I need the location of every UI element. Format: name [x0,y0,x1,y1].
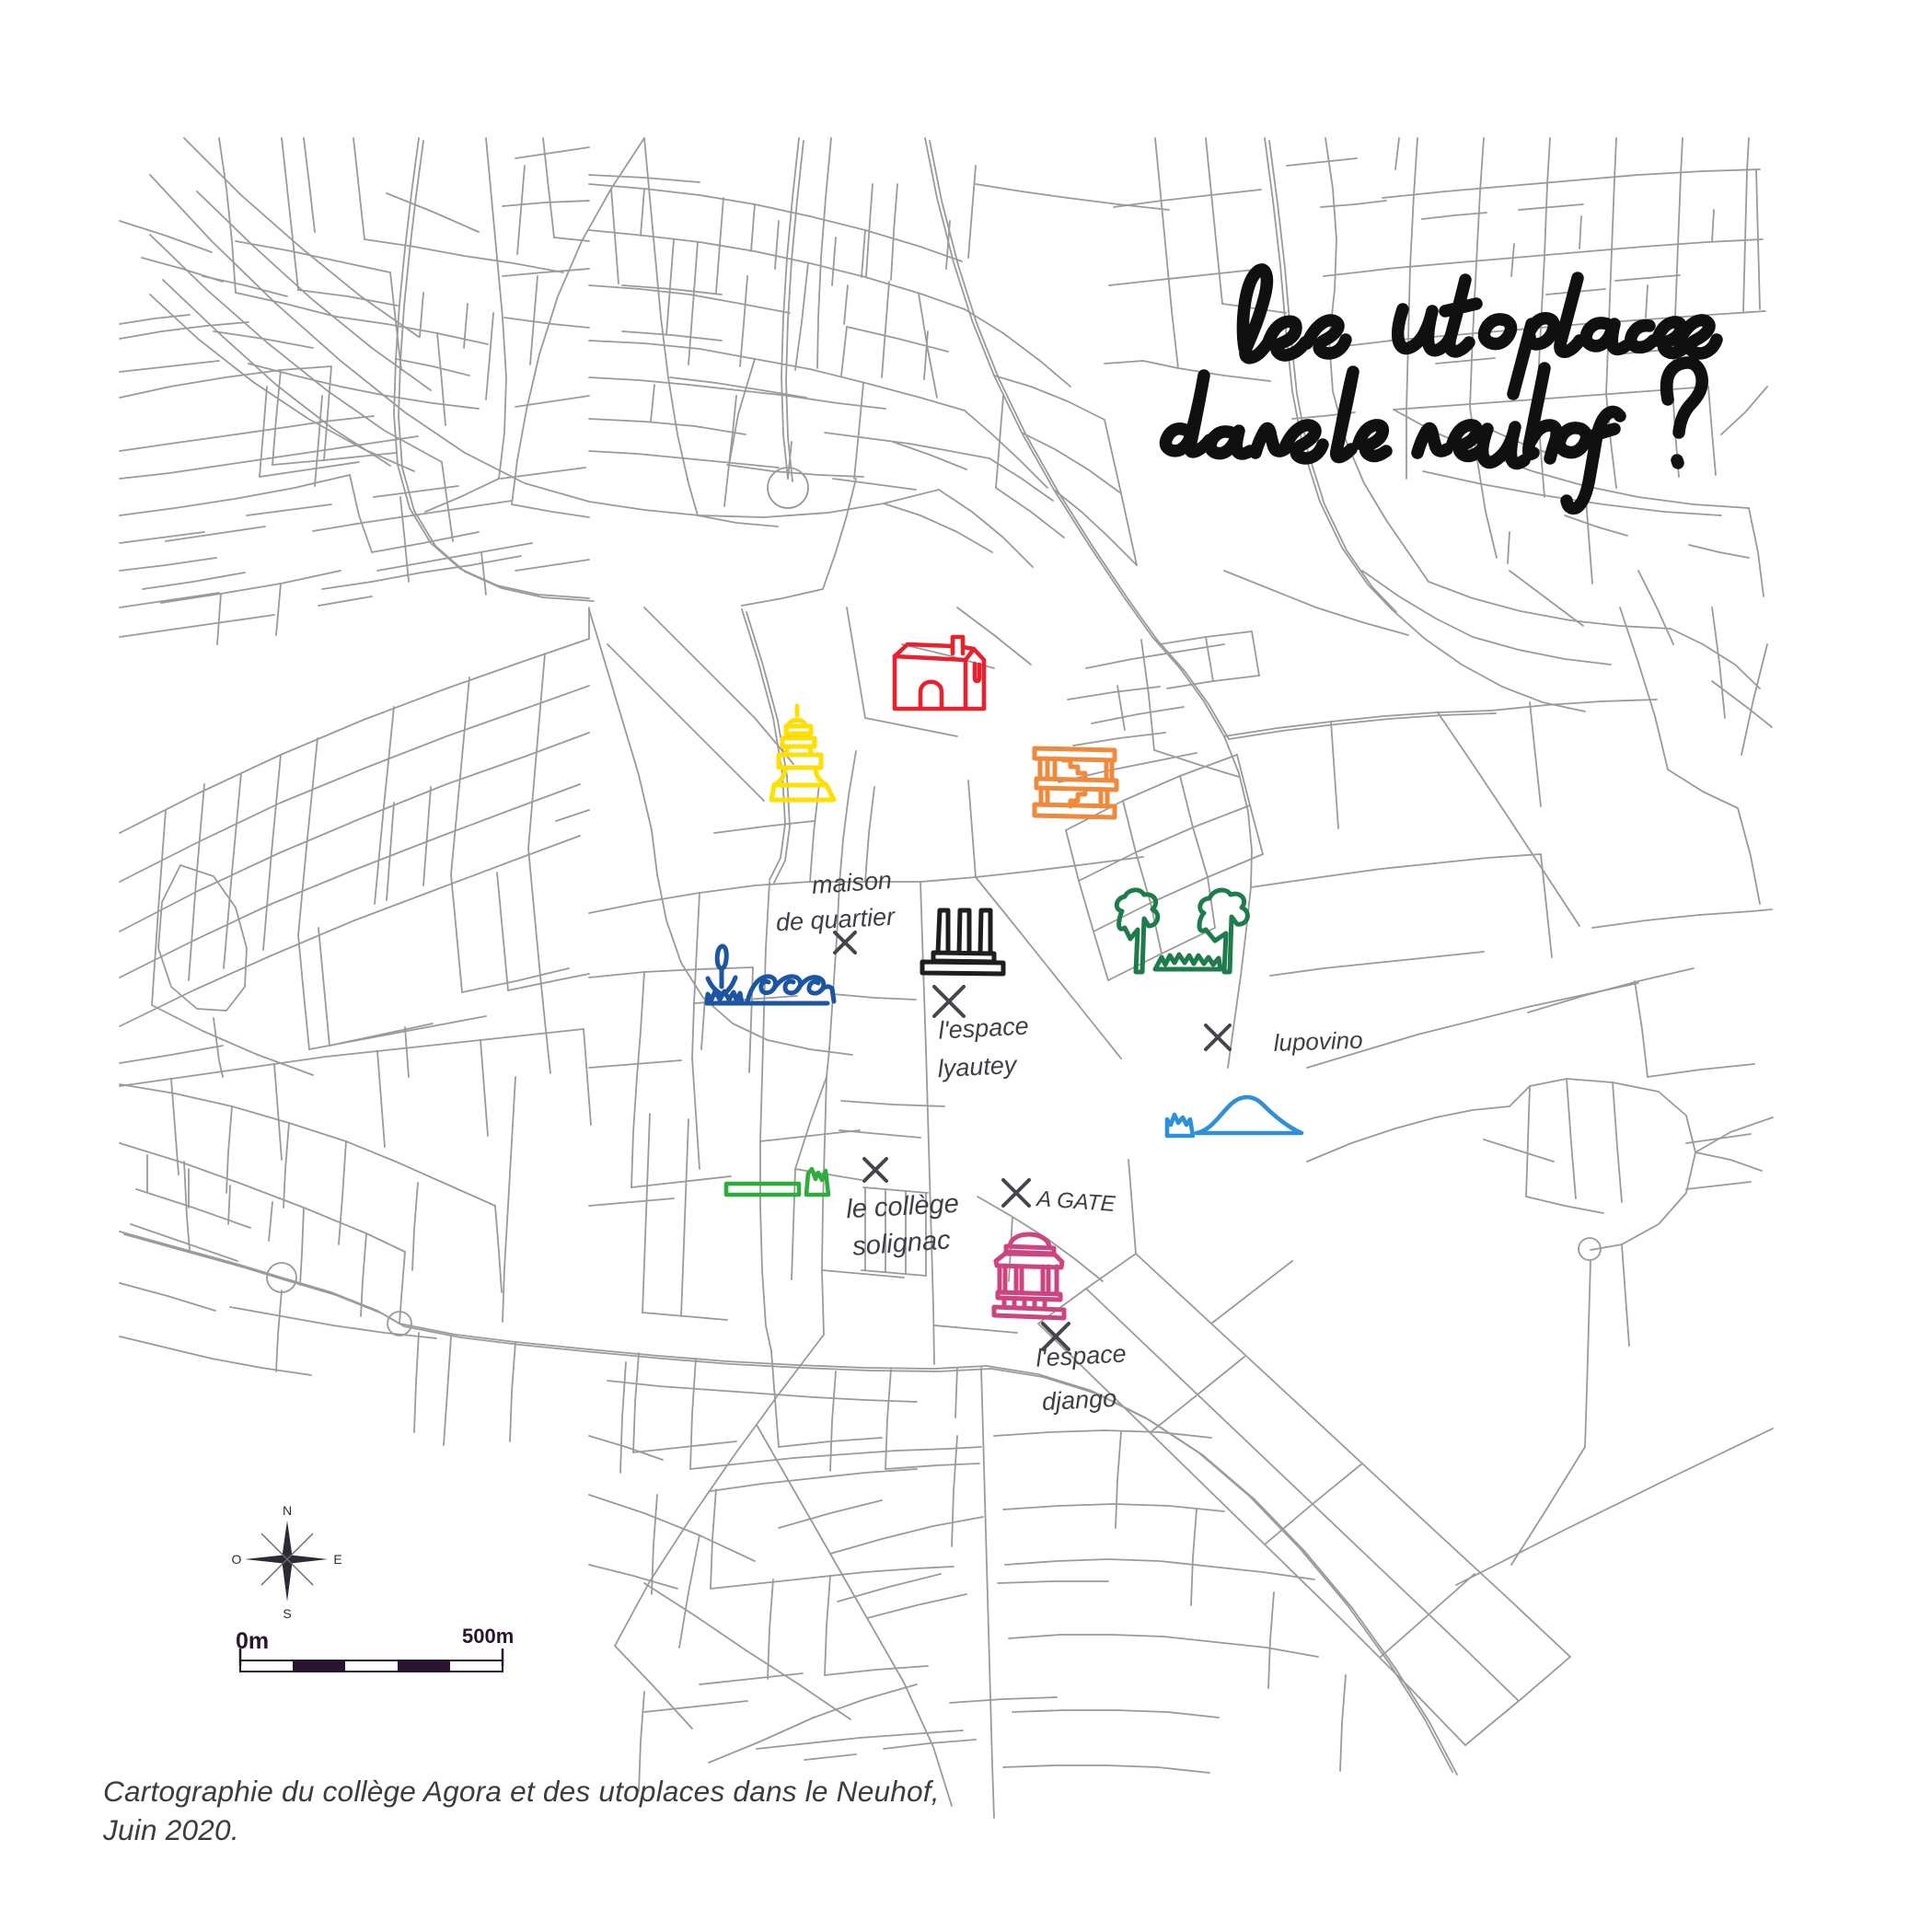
svg-text:l'espace: l'espace [938,1012,1030,1044]
svg-text:E: E [333,1552,341,1567]
svg-text:N: N [283,1503,292,1518]
svg-text:Juin 2020.: Juin 2020. [102,1813,239,1846]
svg-text:maison: maison [811,866,893,899]
svg-text:500m: 500m [462,1625,514,1648]
svg-text:lyautey: lyautey [937,1051,1018,1083]
svg-text:S: S [283,1606,291,1621]
svg-text:le collège: le collège [846,1189,960,1224]
svg-text:Cartographie du collège Agora: Cartographie du collège Agora et des uto… [103,1775,940,1808]
svg-text:O: O [232,1552,242,1567]
svg-text:django: django [1041,1384,1117,1416]
svg-text:0m: 0m [236,1628,269,1654]
svg-text:lupovino: lupovino [1273,1026,1363,1057]
